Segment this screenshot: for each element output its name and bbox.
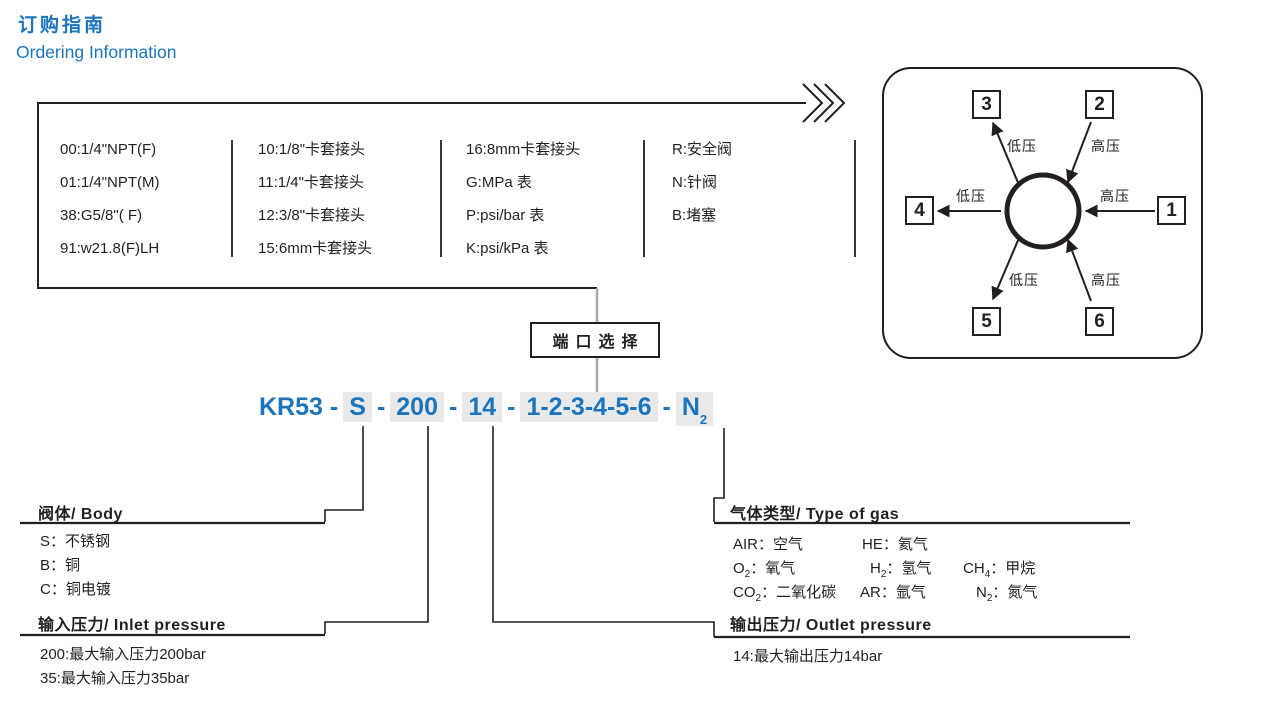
- model-prefix: KR53: [257, 392, 325, 422]
- inlet-option: 35:最大输入压力35bar: [40, 667, 206, 691]
- option-item: 00:1/4"NPT(F): [60, 133, 160, 166]
- model-dash: -: [377, 392, 385, 422]
- gas-option-ar: AR：氩气: [860, 581, 926, 604]
- port-3-box: 3: [972, 90, 1001, 119]
- port-flow-arrows: [938, 122, 1155, 301]
- inlet-option: 200:最大输入压力200bar: [40, 643, 206, 667]
- option-item: 11:1/4"卡套接头: [258, 166, 372, 199]
- model-dash: -: [330, 392, 338, 422]
- model-outlet-code: 14: [462, 392, 502, 422]
- model-dash: -: [507, 392, 515, 422]
- valve-body-circle: [1007, 175, 1079, 247]
- model-body-code: S: [343, 392, 372, 422]
- model-dash: -: [449, 392, 457, 422]
- port6-inflow-arrow: [1068, 240, 1091, 301]
- model-dash: -: [663, 392, 671, 422]
- option-item: 91:w21.8(F)LH: [60, 232, 160, 265]
- body-option: S：不锈钢: [40, 530, 111, 554]
- option-item: P:psi/bar 表: [466, 199, 580, 232]
- leader-lines: [325, 426, 724, 637]
- port-5-pressure-label: 低压: [1009, 270, 1039, 290]
- gas-option-n2: N2：氮气: [976, 581, 1037, 604]
- option-item: 15:6mm卡套接头: [258, 232, 372, 265]
- options-column-compression-fittings: 10:1/8"卡套接头 11:1/4"卡套接头 12:3/8"卡套接头 15:6…: [258, 133, 372, 265]
- gas-option-he: HE：氦气: [862, 533, 928, 556]
- port-2-pressure-label: 高压: [1091, 136, 1121, 156]
- model-gas-code: N2: [676, 392, 713, 426]
- option-item: 10:1/8"卡套接头: [258, 133, 372, 166]
- gas-section-title: 气体类型/ Type of gas: [730, 500, 899, 524]
- option-item: K:psi/kPa 表: [466, 232, 580, 265]
- model-gas-subscript: 2: [700, 405, 707, 435]
- gas-option-ch4: CH4：甲烷: [963, 557, 1035, 580]
- options-column-accessories: R:安全阀 N:针阀 B:堵塞: [672, 133, 732, 232]
- port-4-pressure-label: 低压: [956, 186, 986, 206]
- outlet-section-title: 输出压力/ Outlet pressure: [730, 611, 932, 635]
- page-title-en: Ordering Information: [16, 42, 177, 63]
- option-item: 01:1/4"NPT(M): [60, 166, 160, 199]
- gas-option-h2: H2：氢气: [870, 557, 931, 580]
- port-1-box: 1: [1157, 196, 1186, 225]
- model-inlet-code: 200: [390, 392, 444, 422]
- port-2-box: 2: [1085, 90, 1114, 119]
- port-4-box: 4: [905, 196, 934, 225]
- body-option: B：铜: [40, 554, 111, 578]
- option-item: 38:G5/8"( F): [60, 199, 160, 232]
- option-item: B:堵塞: [672, 199, 732, 232]
- port-1-pressure-label: 高压: [1100, 186, 1130, 206]
- inlet-section-title: 输入压力/ Inlet pressure: [38, 611, 226, 635]
- ordering-information-page: { "colors": { "accent_blue": "#1B75BC", …: [0, 0, 1283, 712]
- model-code: KR53 - S - 200 - 14 - 1-2-3-4-5-6 - N2: [257, 392, 713, 426]
- options-column-ports-threaded: 00:1/4"NPT(F) 01:1/4"NPT(M) 38:G5/8"( F)…: [60, 133, 160, 265]
- model-ports-code: 1-2-3-4-5-6: [520, 392, 657, 422]
- body-option: C：铜电镀: [40, 578, 111, 602]
- port-6-box: 6: [1085, 307, 1114, 336]
- port-selection-box: 端口选择: [530, 322, 660, 358]
- gas-option-co2: CO2：二氧化碳: [733, 581, 836, 604]
- body-section-title: 阀体/ Body: [38, 500, 123, 524]
- body-section-items: S：不锈钢 B：铜 C：铜电镀: [40, 530, 111, 602]
- gas-option-o2: O2：氧气: [733, 557, 795, 580]
- option-item: R:安全阀: [672, 133, 732, 166]
- port-6-pressure-label: 高压: [1091, 270, 1121, 290]
- chevron-arrow-icon: [803, 84, 844, 122]
- option-item: N:针阀: [672, 166, 732, 199]
- option-item: G:MPa 表: [466, 166, 580, 199]
- outlet-option: 14:最大输出压力14bar: [733, 645, 882, 669]
- port2-inflow-arrow: [1068, 122, 1091, 182]
- option-item: 16:8mm卡套接头: [466, 133, 580, 166]
- port-5-box: 5: [972, 307, 1001, 336]
- gas-option-air: AIR：空气: [733, 533, 803, 556]
- option-item: 12:3/8"卡套接头: [258, 199, 372, 232]
- options-column-gauges: 16:8mm卡套接头 G:MPa 表 P:psi/bar 表 K:psi/kPa…: [466, 133, 580, 265]
- page-title-cn: 订购指南: [18, 10, 106, 37]
- inlet-section-items: 200:最大输入压力200bar 35:最大输入压力35bar: [40, 643, 206, 691]
- port-3-pressure-label: 低压: [1007, 136, 1037, 156]
- outlet-section-items: 14:最大输出压力14bar: [733, 645, 882, 669]
